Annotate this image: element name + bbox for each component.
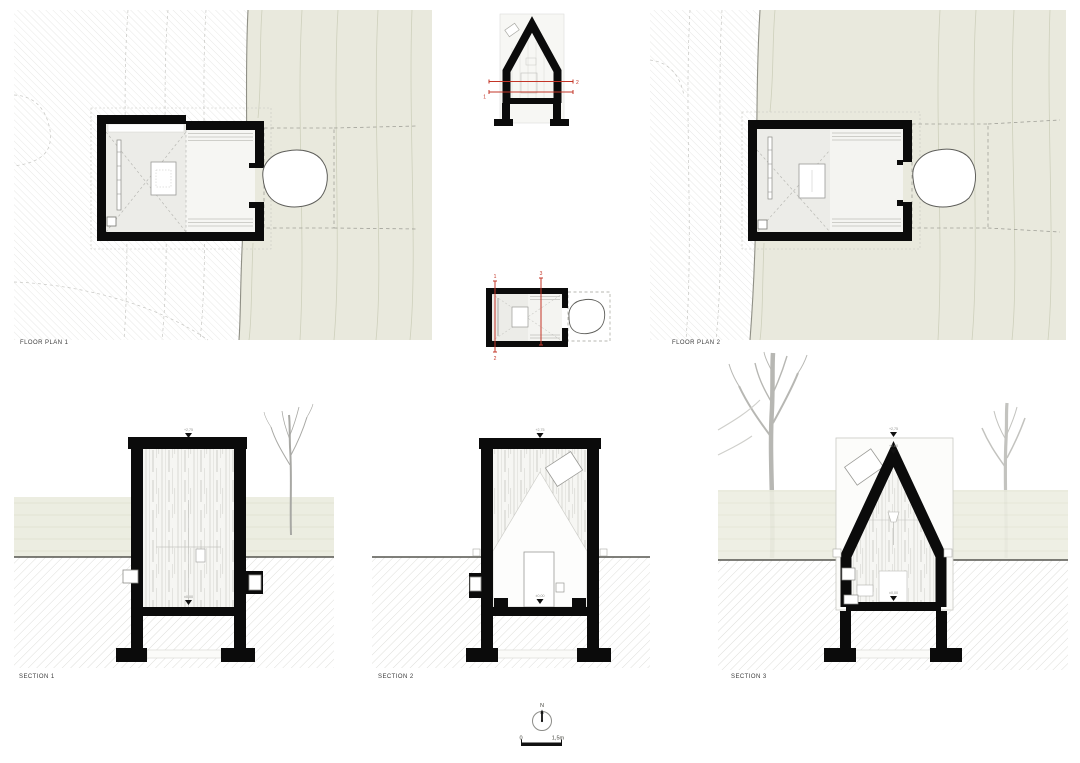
floor-plan-2-label: FLOOR PLAN 2	[672, 340, 720, 346]
section1-entry-box	[249, 575, 261, 590]
section2-door	[524, 552, 554, 607]
level-marker-apex: +2,60	[889, 444, 898, 448]
section-cut-1-label: 1	[494, 274, 497, 280]
plan1-shelf	[108, 124, 184, 132]
plan1-table	[151, 162, 176, 195]
north-label: N	[540, 703, 544, 709]
section-2-label: SECTION 2	[378, 674, 414, 680]
floor-plan-1-drawing	[14, 10, 432, 340]
section-3-drawing: +2,75 +2,60 ±0,00	[718, 352, 1068, 670]
plan2-ladder	[768, 137, 772, 199]
key-plan-drawing: 1 2 3	[486, 271, 610, 362]
plan1-ladder	[117, 140, 121, 210]
branches-left	[718, 400, 760, 455]
level-marker-top: +2,75	[889, 427, 898, 431]
drawing-canvas: 2 1 1 2 3	[0, 0, 1080, 763]
level-arrow-icon	[890, 432, 897, 437]
level-marker-floor: ±0,00	[536, 594, 545, 598]
section-3-label: SECTION 3	[731, 674, 767, 680]
plan-cut-lower-label: 1	[483, 95, 486, 101]
section-2-drawing: +2,75 ±0,00	[372, 428, 650, 668]
plan2-stove	[758, 220, 767, 229]
section2-window-box	[470, 577, 481, 591]
plan-cut-upper-label: 2	[576, 80, 579, 86]
section1-window-box	[123, 570, 138, 583]
drawing-sheet: 2 1 1 2 3	[0, 0, 1080, 763]
section1-hatch-door	[196, 549, 205, 562]
section2-door-handle	[556, 583, 564, 592]
plan1-sleeping-platform	[186, 130, 255, 232]
level-marker-top: +2,75	[184, 428, 193, 432]
plan2-boulder	[913, 149, 976, 207]
level-marker-floor: ±0,00	[184, 595, 193, 599]
scale-max-label: 1,5m	[552, 736, 565, 742]
level-marker-floor: ±0,00	[889, 591, 898, 595]
plan1-stove	[107, 217, 116, 226]
floor-plan-2-drawing	[650, 10, 1066, 340]
scale-bar: 0 1,5m	[519, 736, 564, 747]
key-section-drawing: 2 1	[483, 14, 579, 126]
section-cut-3-label: 3	[540, 271, 543, 277]
section-cut-2-label: 2	[494, 356, 497, 362]
level-marker-top: +2,75	[535, 428, 544, 432]
floor-plan-1-label: FLOOR PLAN 1	[20, 340, 68, 346]
level-arrow-icon	[537, 433, 544, 438]
section-1-label: SECTION 1	[19, 674, 55, 680]
section-1-drawing: +2,75 ±0,00	[14, 404, 334, 668]
plan1-boulder	[263, 150, 328, 207]
scale-bar-rule	[521, 743, 562, 747]
key-plan-table	[512, 307, 528, 327]
section3-window-box	[842, 568, 855, 580]
north-indicator: N	[533, 703, 552, 731]
key-plan-boulder	[569, 299, 605, 333]
